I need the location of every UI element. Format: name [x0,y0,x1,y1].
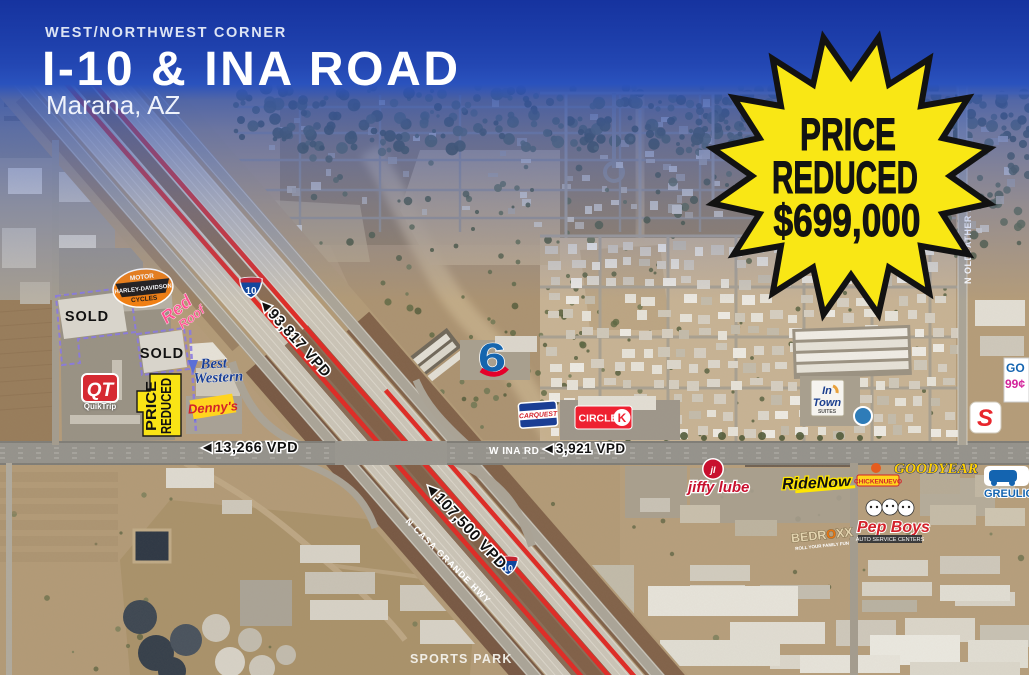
svg-text:$699,000: $699,000 [774,195,921,246]
